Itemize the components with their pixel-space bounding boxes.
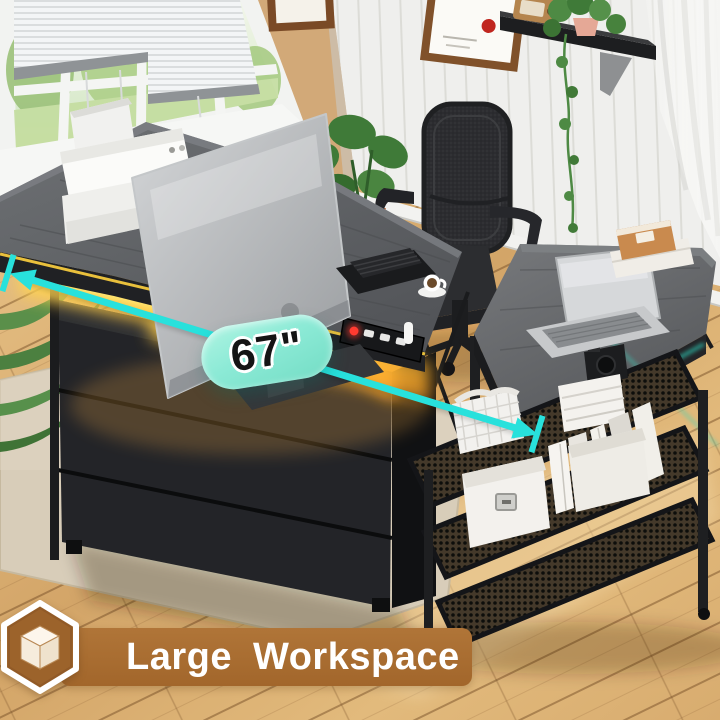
certificate-frame <box>420 0 527 72</box>
partial-picture-frame <box>267 0 335 32</box>
dimension-label: 67" <box>227 322 307 383</box>
product-photo-stage: 67" Large Workspace <box>0 0 720 720</box>
spray-bottle <box>404 322 413 344</box>
scene-illustration <box>0 0 720 720</box>
